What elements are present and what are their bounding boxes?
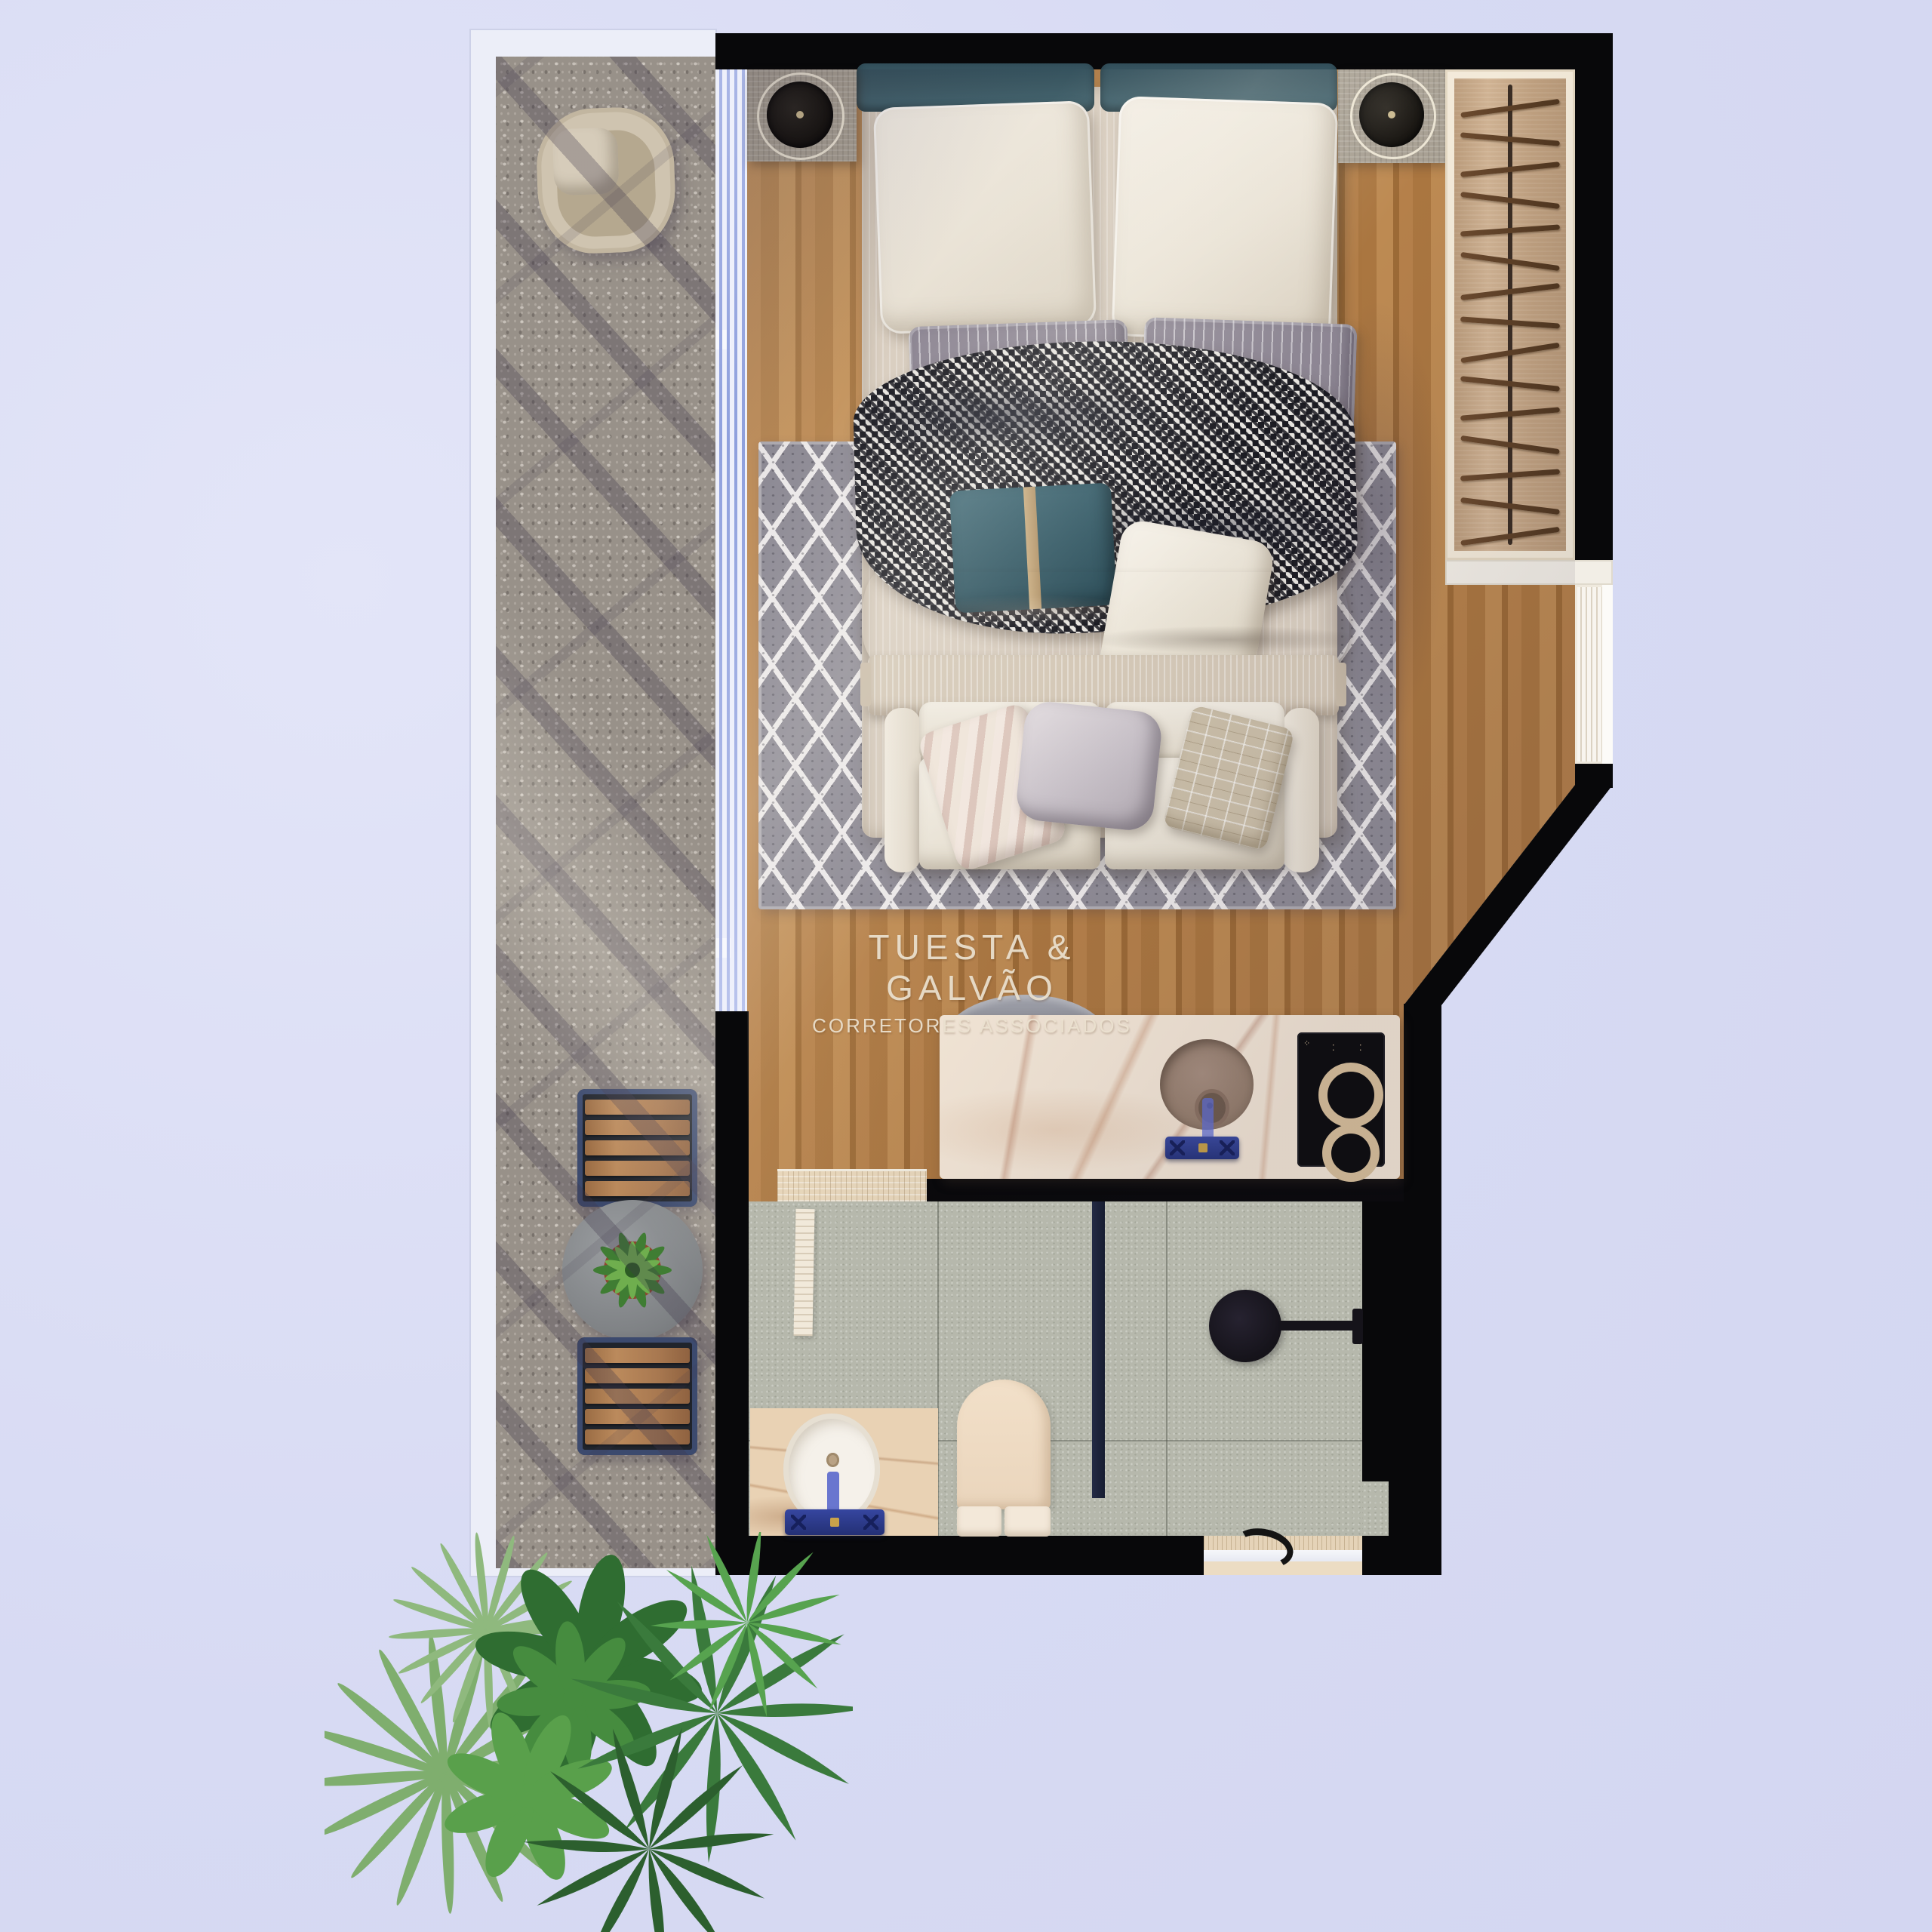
glass-panel-line <box>719 64 722 1011</box>
bathroom-tile-notch <box>1362 1481 1389 1536</box>
bathroom-faucet-base <box>785 1509 884 1535</box>
wall-kitchen-bathroom <box>927 1179 1441 1201</box>
broadleaf-plant-icon <box>465 1589 681 1806</box>
closet <box>1445 69 1575 560</box>
kitchen-faucet-base <box>1165 1137 1239 1159</box>
speaker-dot-right <box>1388 111 1395 118</box>
glass-panel-line <box>734 64 737 1011</box>
faucet-handle-icon <box>1220 1140 1235 1155</box>
closet-interior <box>1454 78 1566 551</box>
glass-panel-line <box>727 64 730 1011</box>
wall-right-mid <box>1575 764 1613 788</box>
cooktop-burner-large-icon <box>1318 1063 1383 1128</box>
fan-palm-icon <box>325 1633 586 1914</box>
wall-left-bathroom <box>715 1011 749 1575</box>
window-right-wall <box>1575 585 1613 764</box>
wall-right-upper <box>1575 69 1613 560</box>
cooktop: ⁘ ⁚ ⁚ <box>1297 1032 1385 1167</box>
feather-palm-icon <box>484 1684 815 1932</box>
cooktop-control-icon: ⁘ <box>1303 1038 1312 1048</box>
window-sheer-curtain <box>1602 585 1613 764</box>
faucet-gold-detail <box>1198 1143 1207 1152</box>
bed-pillow-white-right <box>1112 96 1339 343</box>
tropical-plants <box>325 1532 853 1932</box>
bathroom-sink-drain-icon <box>826 1453 839 1467</box>
broadleaf-plant-icon <box>415 1683 642 1910</box>
shower-wall-bracket <box>1352 1309 1363 1344</box>
shower-glass-partition <box>1092 1201 1105 1498</box>
sofa-pillow-gray <box>1014 700 1164 832</box>
hanging-towel <box>794 1209 815 1336</box>
window-sill <box>1445 560 1613 585</box>
floor-plan-canvas: ⁘ ⁚ ⁚ TUESTA & GALVÃO CO <box>0 0 1932 1932</box>
feather-palm-icon <box>570 1564 853 1863</box>
wall-right-kitchen <box>1404 1004 1441 1201</box>
toilet-tank-left <box>957 1506 1001 1537</box>
quilt-flap-right <box>1336 663 1346 706</box>
pergola-shadow-overlay <box>496 57 715 1568</box>
wall-bottom <box>715 1536 1204 1575</box>
tile-joint <box>1166 1201 1168 1536</box>
faucet-gold-detail <box>830 1518 839 1527</box>
cooktop-burner-small-icon <box>1322 1124 1380 1182</box>
faucet-handle-icon <box>863 1515 878 1530</box>
watermark-line1: TUESTA & GALVÃO <box>783 927 1161 1008</box>
cooktop-burner-mark-icon: ⁚ <box>1359 1043 1364 1053</box>
bathroom-vanity <box>750 1408 938 1536</box>
toilet <box>957 1380 1051 1509</box>
sofa-arm-left <box>884 708 921 872</box>
toilet-tank-right <box>1004 1506 1051 1537</box>
quilt-flap-left <box>860 663 871 706</box>
bed-pillow-white-left <box>873 100 1097 334</box>
shower-arm <box>1278 1321 1355 1331</box>
sliding-glass-wall <box>715 64 749 1011</box>
watermark-line2: CORRETORES ASSOCIADOS <box>783 1014 1161 1038</box>
speaker-dot-left <box>796 111 804 118</box>
brand-watermark: TUESTA & GALVÃO CORRETORES ASSOCIADOS <box>783 927 1161 1038</box>
cooktop-burner-mark-icon: ⁚ <box>1332 1043 1337 1053</box>
shower-head-icon <box>1209 1290 1281 1362</box>
folded-brown-blanket <box>862 572 1349 669</box>
faucet-handle-icon <box>1170 1140 1185 1155</box>
glass-panel-line <box>742 64 745 1011</box>
faucet-handle-icon <box>791 1515 806 1530</box>
